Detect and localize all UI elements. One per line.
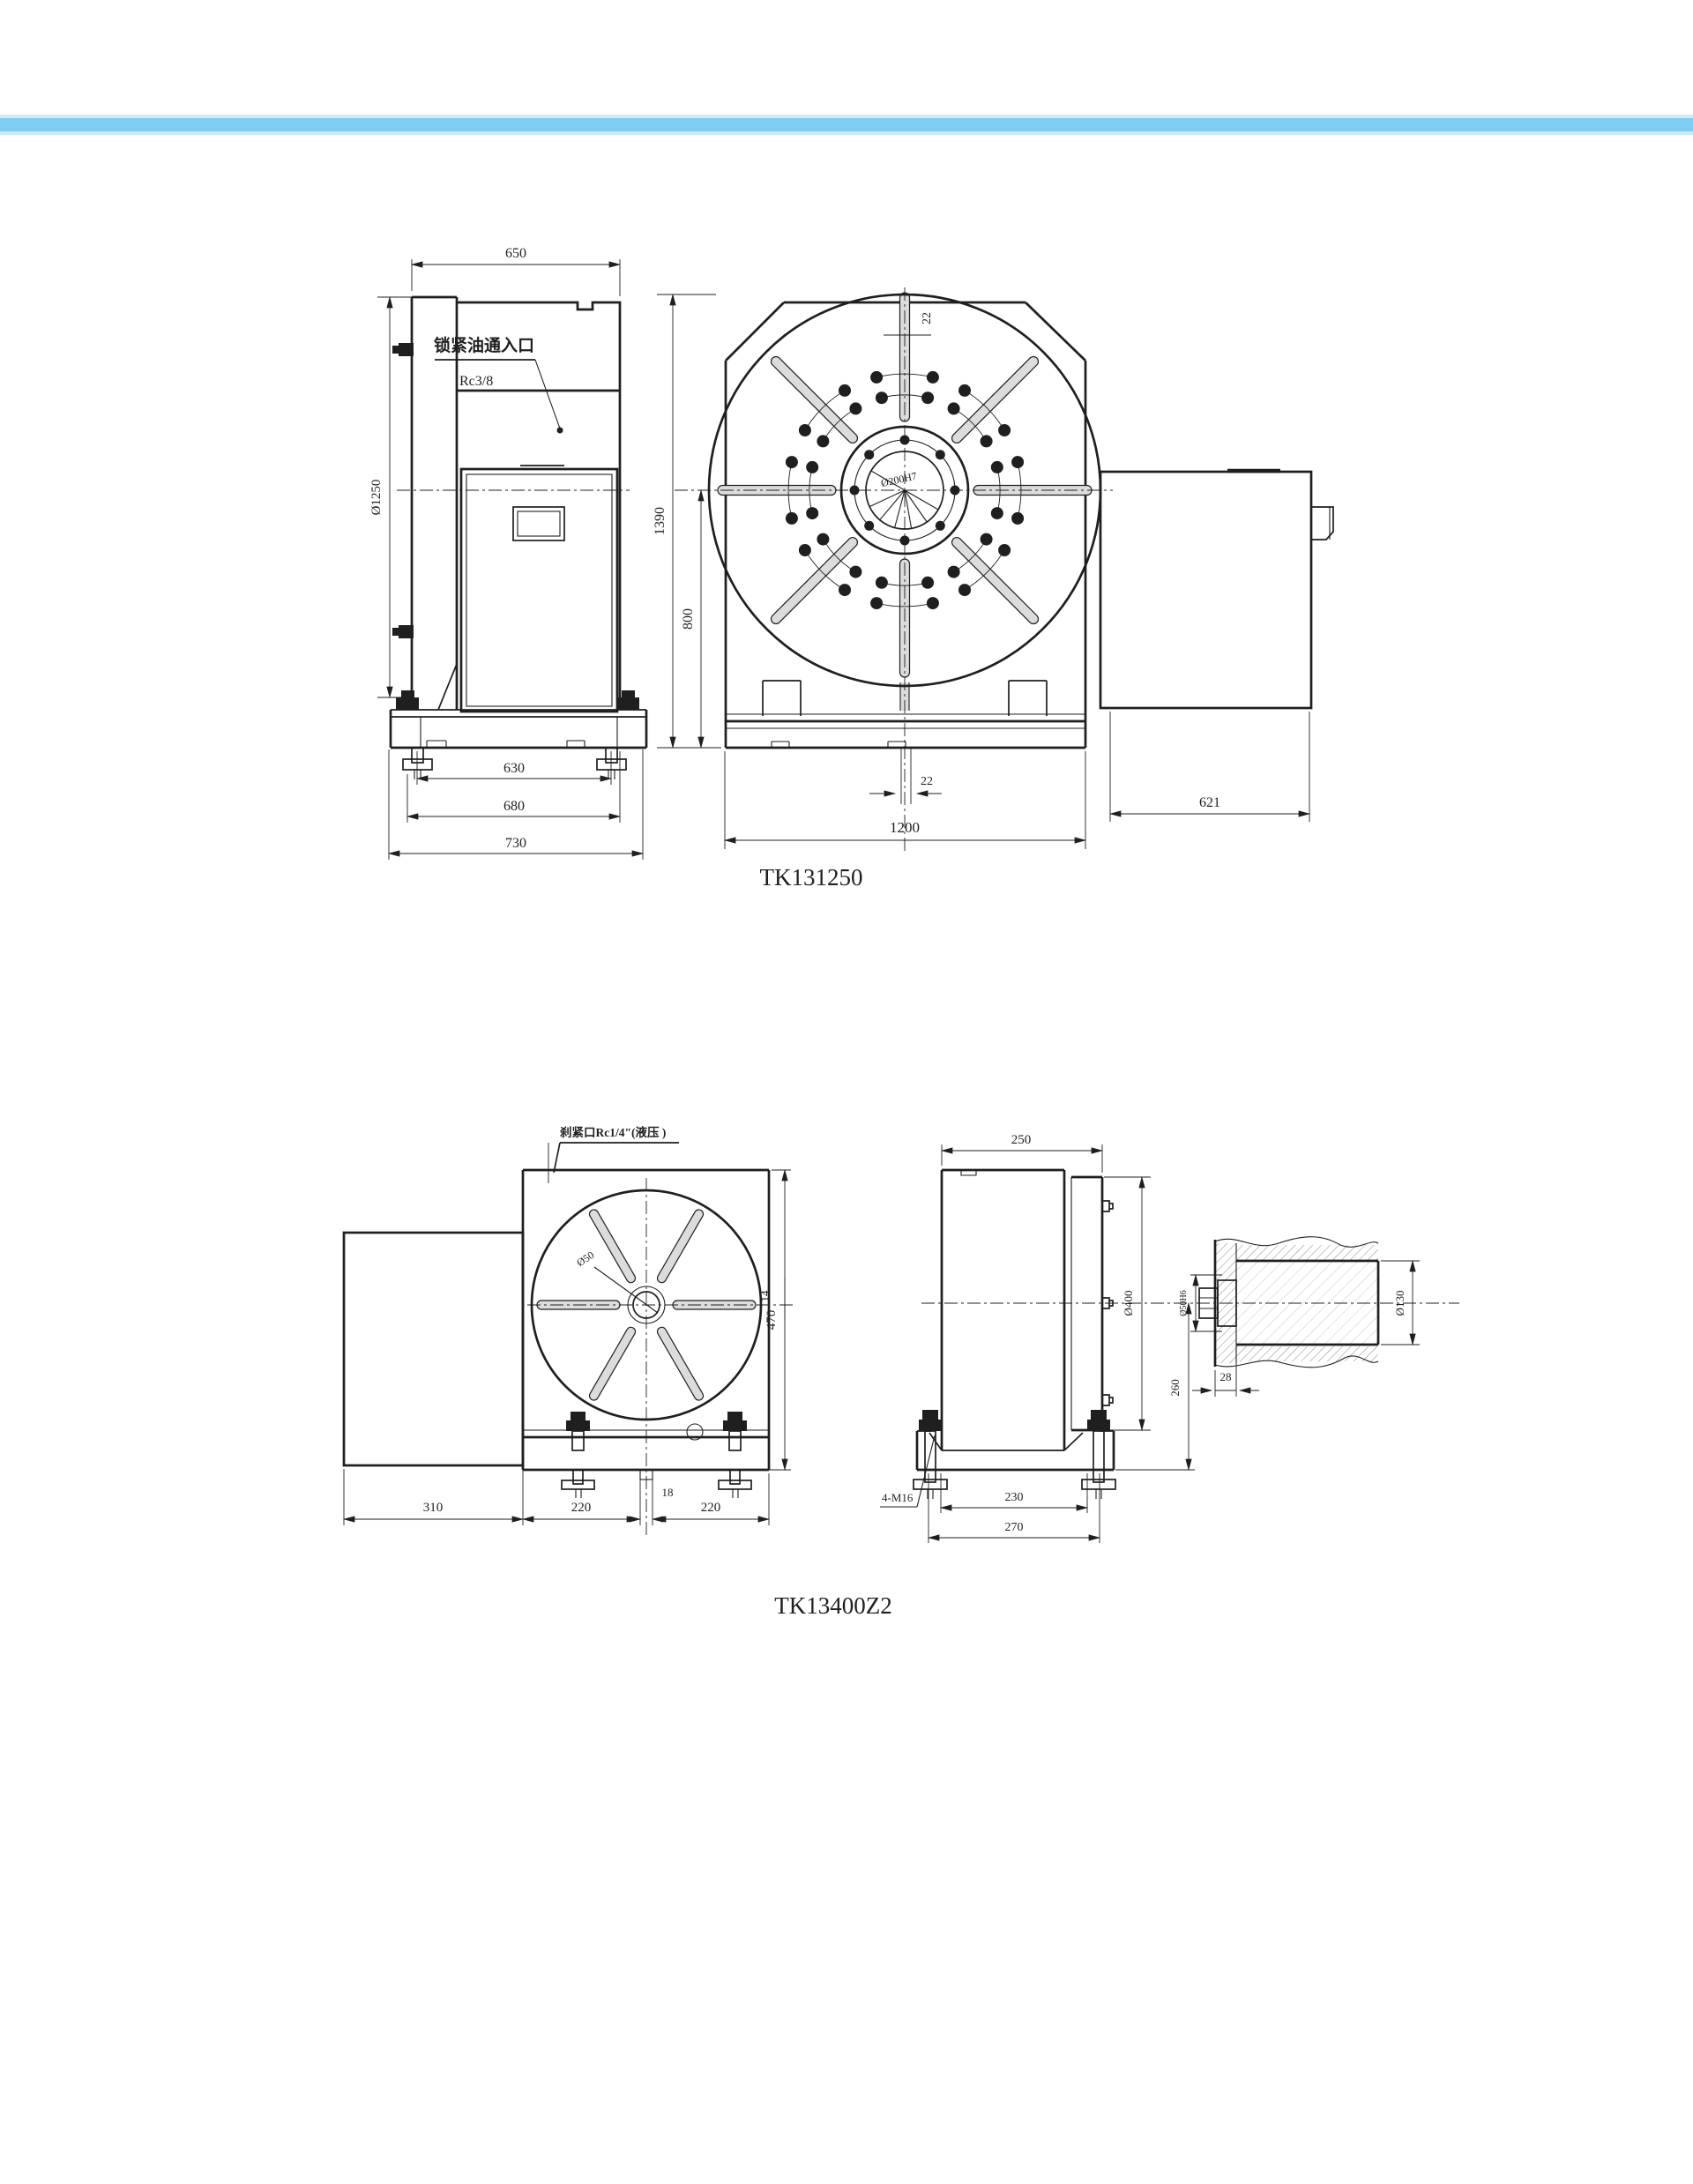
dim-28: 28 [1220,1370,1232,1383]
bolt-hole-dot [927,597,939,609]
bolt-hole-dot [958,384,971,397]
dim-680: 680 [503,799,525,814]
bolt-hole-dot [921,391,934,404]
top-bar-core [0,118,1693,131]
catalog-page: 650 Ø1250 锁紧油通入口 Rc3/8 630 680 730 [0,0,1693,2184]
bolt-hole-dot [786,512,798,525]
bolt-hole-dot [921,577,934,589]
hub-bolt-dot [864,450,874,459]
d2-title: TK13400Z2 [774,1592,891,1619]
label-clamp-port: 刹紧口Rc1/4"(液压 ) [560,1125,666,1139]
bolt-hole-dot [806,461,818,473]
label-thread-spec: Rc3/8 [459,374,493,389]
bolt-hole-dot [849,402,861,414]
bolt-hole-dot [849,566,861,578]
label-anchor-bolts: 4-M16 [882,1491,914,1504]
dim-250: 250 [1011,1133,1032,1147]
bolt-hole-dot [981,533,993,546]
bolt-hole-dot [1011,512,1024,525]
hub-bolt-dot [936,450,945,459]
bolt-hole-dot [870,597,883,609]
dim-220-left: 220 [571,1501,592,1515]
bolt-hole-dot [817,533,829,546]
bolt-hole-dot [948,566,960,578]
dim-slot-offset-22: 22 [921,775,933,788]
dim-650: 650 [505,246,526,261]
bolt-hole-dot [948,402,960,414]
bolt-hole-dot [1011,456,1024,468]
dim-310: 310 [423,1501,444,1515]
label-slot-width-14: 14 [758,1290,772,1302]
dim-630: 630 [503,761,525,776]
bolt-hole-dot [927,371,939,384]
hub-bolt-dot [864,521,874,531]
bolt-hole-dot [981,435,993,447]
bolt-hole-dot [991,461,1003,473]
dim-1390: 1390 [653,507,668,535]
label-oil-inlet: 锁紧油通入口 [434,335,534,355]
bolt-hole-dot [998,544,1011,556]
bolt-hole-dot [817,435,829,447]
dim-230: 230 [1005,1491,1024,1504]
bolt-hole-dot [876,391,888,404]
dim-270: 270 [1005,1521,1024,1534]
bolt-hole-dot [839,584,851,596]
bolt-hole-dot [958,584,971,596]
dim-18: 18 [662,1486,674,1499]
technical-drawing-canvas: 650 Ø1250 锁紧油通入口 Rc3/8 630 680 730 [0,0,1693,2184]
dim-621: 621 [1199,795,1220,810]
top-bar [0,115,1693,135]
dim-220-right: 220 [701,1501,721,1515]
bolt-hole-dot [998,424,1011,436]
dim-800: 800 [681,608,696,630]
bolt-hole-dot [870,371,883,384]
bolt-hole-dot [799,424,811,436]
bolt-hole-dot [799,544,811,556]
dim-730: 730 [505,836,526,851]
dim-260: 260 [1168,1379,1182,1397]
page-background [0,0,1693,2184]
d1-title: TK131250 [760,864,863,891]
bolt-hole-dot [786,456,798,468]
bolt-hole-dot [876,577,888,589]
dim-470: 470 [764,1310,779,1331]
bolt-hole-dot [991,507,1003,519]
dim-table-diameter: Ø1250 [369,480,384,516]
bolt-hole-dot [839,384,851,397]
hub-bolt-dot [936,521,945,531]
label-slot-width-22: 22 [921,312,934,324]
bolt-hole-dot [806,507,818,519]
